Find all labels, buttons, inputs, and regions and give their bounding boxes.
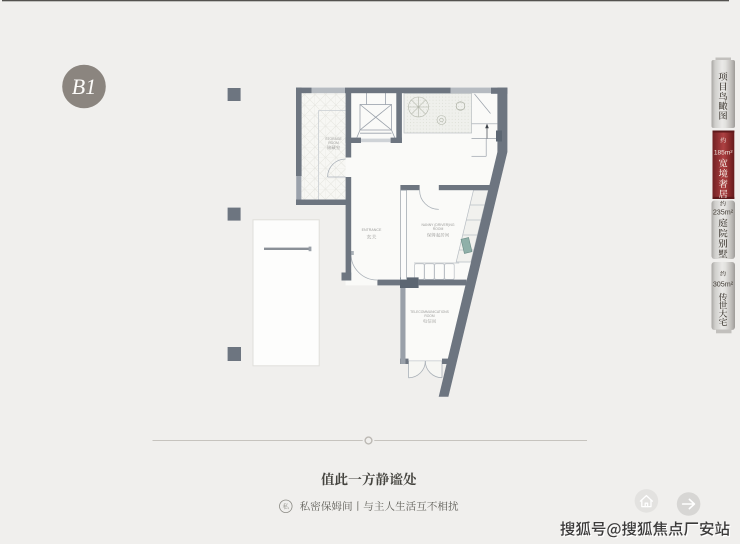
svg-text:B1: B1: [72, 74, 96, 99]
svg-text:ROOM: ROOM: [328, 141, 339, 145]
svg-text:185m²: 185m²: [714, 150, 733, 157]
svg-text:235m²: 235m²: [713, 207, 734, 216]
svg-text:ROOM: ROOM: [424, 314, 435, 318]
svg-text:ROOM: ROOM: [433, 227, 444, 231]
svg-text:305m²: 305m²: [713, 280, 734, 289]
svg-text:ENTRANCE: ENTRANCE: [362, 228, 382, 232]
